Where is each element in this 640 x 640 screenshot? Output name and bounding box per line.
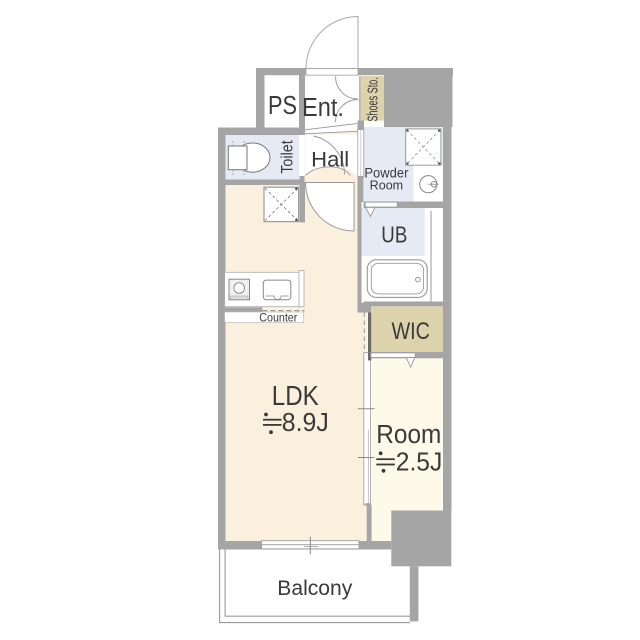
svg-text:Hall: Hall [311,148,349,172]
svg-text:Room: Room [376,421,441,449]
svg-text:PS: PS [268,90,297,120]
svg-text:LDK: LDK [272,380,319,411]
svg-text:Toilet: Toilet [278,140,297,174]
svg-text:Balcony: Balcony [277,576,352,600]
svg-text:Shoes Sto.: Shoes Sto. [364,77,381,122]
svg-text:UB: UB [381,222,407,248]
svg-text:WIC: WIC [391,318,430,345]
svg-text:Ent.: Ent. [302,94,344,122]
svg-text:8.9J: 8.9J [282,409,329,437]
svg-text:Room: Room [370,178,404,193]
svg-text:2.5J: 2.5J [396,449,443,477]
svg-text:Counter: Counter [259,313,297,325]
